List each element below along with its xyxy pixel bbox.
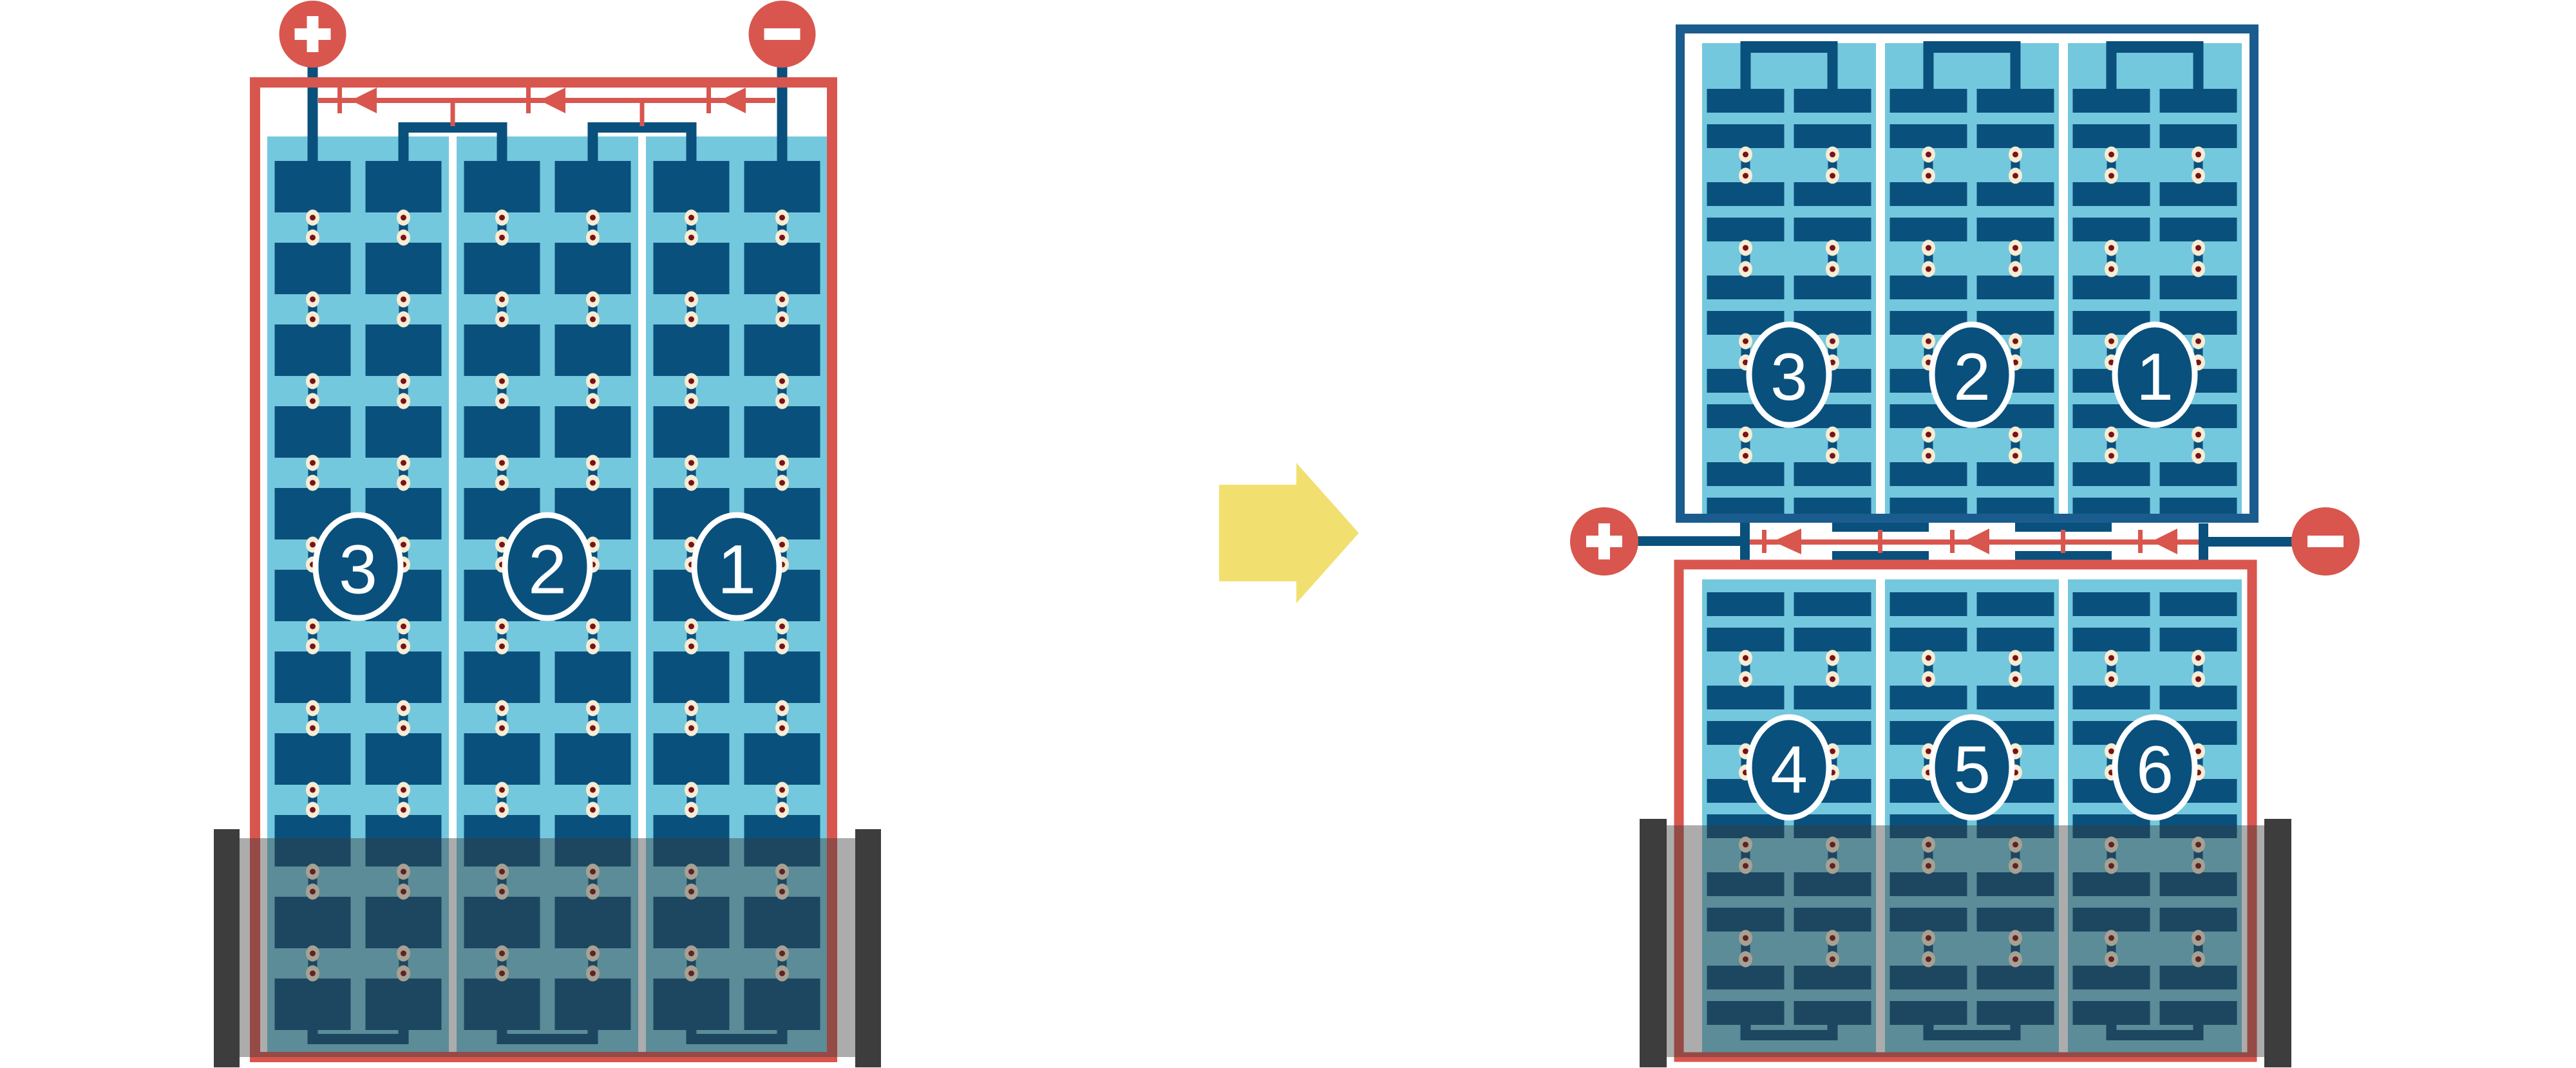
rivet-center xyxy=(2108,152,2114,158)
rivet-center xyxy=(310,235,316,241)
rivet-center xyxy=(688,706,694,711)
rivet-center xyxy=(401,398,406,404)
battery-plate-cell xyxy=(366,651,442,703)
rivet-center xyxy=(688,787,694,793)
connector-bridge-leg xyxy=(399,122,409,169)
battery-plate-cell xyxy=(2073,498,2150,514)
battery-plate-cell xyxy=(366,406,442,458)
connector-bridge-leg xyxy=(1828,41,1838,90)
rivet-center xyxy=(2012,245,2018,251)
rivet-center xyxy=(1743,677,1748,682)
rivet-center xyxy=(499,235,505,241)
rivet-center xyxy=(590,644,596,650)
rivet-center xyxy=(1926,453,1931,459)
right-upper-pack: 3 2 1 xyxy=(1680,29,2254,518)
battery-plate-cell xyxy=(555,651,631,703)
rivet-center xyxy=(499,480,505,486)
rivet-center xyxy=(2108,677,2114,682)
rivet-center xyxy=(1743,655,1748,661)
battery-plate-cell xyxy=(1707,218,1785,241)
rivet-center xyxy=(401,235,406,241)
lower-cell-badges: 4 5 6 xyxy=(1749,717,2195,818)
rivet-center xyxy=(1926,245,1931,251)
cell-number: 2 xyxy=(528,530,567,608)
rivet-center xyxy=(779,726,785,731)
rivet-center xyxy=(499,644,505,650)
battery-plate-cell xyxy=(366,243,442,294)
rivet-center xyxy=(310,317,316,323)
connector-bridge-leg xyxy=(1741,41,1751,90)
rivet-center xyxy=(1926,432,1931,438)
connector-bridge-bar xyxy=(2107,41,2204,53)
rivet-center xyxy=(1926,152,1931,158)
battery-plate-cell xyxy=(555,324,631,376)
right-battery-unit: 3 2 1 xyxy=(1570,29,2360,1067)
rivet-center xyxy=(401,706,406,711)
cell-number: 1 xyxy=(2136,340,2173,415)
battery-plate-cell xyxy=(2073,686,2150,709)
rivet-center xyxy=(779,235,785,241)
battery-plate-cell xyxy=(1977,124,2054,148)
diode-bar xyxy=(2138,530,2143,553)
positive-bus-stub xyxy=(1740,523,1750,560)
battery-plate-cell xyxy=(1794,124,1871,148)
rivet-center xyxy=(499,787,505,793)
rivet-center xyxy=(1830,453,1835,459)
rivet-center xyxy=(2108,655,2114,661)
rivet-center xyxy=(590,624,596,630)
battery-plate-cell xyxy=(2160,124,2237,148)
battery-plate-cell xyxy=(366,733,442,785)
negative-bus-bar xyxy=(2208,537,2292,547)
battery-plate-cell xyxy=(1794,276,1871,299)
battery-plate-cell xyxy=(2160,686,2237,709)
battery-plate-cell xyxy=(1890,89,1967,113)
battery-plate-cell xyxy=(1890,124,1967,148)
battery-plate-cell xyxy=(2073,462,2150,486)
rivet-center xyxy=(401,317,406,323)
battery-plate-cell xyxy=(1890,628,1967,651)
battery-plate-cell xyxy=(1890,182,1967,206)
rivet-center xyxy=(1926,339,1931,344)
positive-bus-bar xyxy=(1638,536,1741,546)
rivet-center xyxy=(1743,267,1748,272)
battery-plate-cell xyxy=(2073,89,2150,113)
rivet-center xyxy=(779,542,785,548)
rivet-center xyxy=(688,542,694,548)
battery-plate-cell xyxy=(275,733,351,785)
rivet-center xyxy=(2195,173,2201,179)
rivet-center xyxy=(2108,339,2114,344)
rivet-center xyxy=(779,297,785,303)
rivet-center xyxy=(2012,267,2018,272)
connector-bridge-leg xyxy=(588,122,598,169)
left-arrowhead-icon xyxy=(351,88,377,113)
rivet-center xyxy=(310,460,316,466)
cell-number: 1 xyxy=(717,530,756,608)
battery-plate-cell xyxy=(275,406,351,458)
battery-plate-cell xyxy=(1707,462,1785,486)
rivet-center xyxy=(310,297,316,303)
rivet-center xyxy=(499,726,505,731)
rivet-center xyxy=(1830,173,1835,179)
upper-cell-grid xyxy=(1702,43,2242,514)
rivet-center xyxy=(2108,453,2114,459)
rivet-center xyxy=(1830,677,1835,682)
battery-plate-cell xyxy=(1794,182,1871,206)
battery-plate-cell xyxy=(744,324,820,376)
current-line-tick xyxy=(2061,530,2065,553)
rivet-center xyxy=(688,215,694,221)
battery-plate-cell xyxy=(555,406,631,458)
rivet-center xyxy=(1830,152,1835,158)
rivet-center xyxy=(1743,432,1748,438)
battery-plate-cell xyxy=(2160,462,2237,486)
rivet-center xyxy=(779,460,785,466)
rivet-center xyxy=(499,460,505,466)
rivet-center xyxy=(499,379,505,384)
rivet-center xyxy=(2012,152,2018,158)
rivet-center xyxy=(2012,655,2018,661)
rivet-center xyxy=(2012,453,2018,459)
right-case-tray xyxy=(1640,819,2291,1067)
rivet-center xyxy=(590,807,596,813)
rivet-center xyxy=(1926,173,1931,179)
battery-plate-cell xyxy=(464,406,540,458)
rivet-center xyxy=(2195,267,2201,272)
battery-plate-cell xyxy=(654,406,730,458)
rivet-center xyxy=(688,726,694,731)
battery-plate-cell xyxy=(1794,89,1871,113)
battery-plate-cell xyxy=(2073,182,2150,206)
rivet-center xyxy=(1830,245,1835,251)
rivet-center xyxy=(2195,339,2201,344)
battery-plate-cell xyxy=(2160,628,2237,651)
left-arrowhead-icon xyxy=(1773,529,1801,554)
battery-plate-cell xyxy=(2073,592,2150,616)
rivet-center xyxy=(2195,453,2201,459)
battery-plate-cell xyxy=(464,651,540,703)
rivet-center xyxy=(688,297,694,303)
rivet-center xyxy=(590,726,596,731)
battery-plate-cell xyxy=(2073,218,2150,241)
minus-icon-bar xyxy=(764,28,800,40)
rivet-center xyxy=(779,706,785,711)
rivet-center xyxy=(1926,749,1931,754)
rivet-center xyxy=(779,787,785,793)
rivet-center xyxy=(1830,432,1835,438)
negative-bus-stub xyxy=(2199,523,2208,560)
right-negative-terminal xyxy=(2291,507,2360,576)
rivet-center xyxy=(590,215,596,221)
connector-bridge-bar xyxy=(1741,41,1838,53)
rivet-center xyxy=(688,644,694,650)
battery-plate-cell xyxy=(1794,498,1871,514)
connector-bridge-bar xyxy=(1924,41,2021,53)
battery-plate-cell xyxy=(1707,628,1785,651)
left-current-flow-line xyxy=(318,88,775,126)
battery-plate-cell xyxy=(2160,218,2237,241)
rivet-center xyxy=(310,379,316,384)
current-line-drop-tick xyxy=(451,98,455,126)
tray-end-cap xyxy=(2264,819,2291,1067)
rivet-center xyxy=(310,644,316,650)
left-case-tray xyxy=(214,829,881,1067)
rivet-center xyxy=(590,235,596,241)
rivet-center xyxy=(2108,267,2114,272)
left-negative-terminal xyxy=(749,1,816,68)
rivet-center xyxy=(310,807,316,813)
rivet-center xyxy=(1830,339,1835,344)
battery-plate-cell xyxy=(1794,218,1871,241)
rivet-center xyxy=(401,460,406,466)
battery-plate-cell xyxy=(464,324,540,376)
battery-plate-cell xyxy=(555,243,631,294)
battery-plate-cell xyxy=(1977,462,2054,486)
cell-number: 4 xyxy=(1770,733,1808,807)
rivet-center xyxy=(2012,677,2018,682)
rivet-center xyxy=(2108,245,2114,251)
rivet-center xyxy=(499,542,505,548)
battery-plate-cell xyxy=(744,243,820,294)
battery-plate-cell xyxy=(1707,592,1785,616)
battery-plate-cell xyxy=(275,243,351,294)
rivet-center xyxy=(401,807,406,813)
rivet-center xyxy=(2012,749,2018,754)
battery-plate-cell xyxy=(2160,182,2237,206)
rivet-center xyxy=(779,644,785,650)
rivet-center xyxy=(590,317,596,323)
rivet-center xyxy=(688,398,694,404)
battery-plate-cell xyxy=(1977,686,2054,709)
battery-plate-cell xyxy=(1977,218,2054,241)
rivet-center xyxy=(2195,245,2201,251)
rivet-center xyxy=(2108,173,2114,179)
rivet-center xyxy=(2012,339,2018,344)
cell-number: 2 xyxy=(1953,340,1991,415)
rivet-center xyxy=(590,297,596,303)
rivet-center xyxy=(688,480,694,486)
rivet-center xyxy=(310,787,316,793)
rivet-center xyxy=(499,398,505,404)
rivet-center xyxy=(401,624,406,630)
rivet-center xyxy=(401,644,406,650)
battery-plate-cell xyxy=(654,243,730,294)
rivet-center xyxy=(401,297,406,303)
rivet-center xyxy=(499,706,505,711)
battery-plate-cell xyxy=(744,406,820,458)
battery-plate-cell xyxy=(1890,498,1967,514)
plus-icon-bar xyxy=(1598,523,1610,559)
rivet-center xyxy=(499,807,505,813)
connector-bridge-leg xyxy=(1924,41,1934,90)
right-current-flow-line xyxy=(1750,529,2199,554)
rivet-center xyxy=(2195,749,2201,754)
rivet-center xyxy=(310,542,316,548)
rivet-center xyxy=(401,726,406,731)
battery-plate-cell xyxy=(275,324,351,376)
rivet-center xyxy=(1743,152,1748,158)
battery-plate-cell xyxy=(1707,686,1785,709)
battery-plate-cell xyxy=(1977,276,2054,299)
rivet-center xyxy=(590,542,596,548)
rivet-center xyxy=(1830,749,1835,754)
rivet-center xyxy=(1926,655,1931,661)
rivet-center xyxy=(2195,432,2201,438)
battery-plate-cell xyxy=(2160,498,2237,514)
rivet-center xyxy=(310,215,316,221)
left-arrowhead-icon xyxy=(2152,529,2177,554)
battery-plate-cell xyxy=(1707,89,1785,113)
rivet-center xyxy=(1743,245,1748,251)
diode-bar xyxy=(706,88,711,113)
battery-plate-cell xyxy=(2073,276,2150,299)
connector-bridge-leg xyxy=(497,122,507,169)
rivet-center xyxy=(2012,432,2018,438)
tray-overlay xyxy=(1667,825,2264,1057)
rivet-center xyxy=(401,787,406,793)
connector-bridge-leg xyxy=(2193,41,2204,90)
battery-plate-cell xyxy=(1977,182,2054,206)
rivet-center xyxy=(688,460,694,466)
rivet-center xyxy=(1926,677,1931,682)
battery-plate-cell xyxy=(1890,686,1967,709)
minus-icon-bar xyxy=(2307,536,2344,547)
left-cell-badges: 3 2 1 xyxy=(316,515,779,618)
battery-plate-cell xyxy=(1794,592,1871,616)
rivet-center xyxy=(590,460,596,466)
left-arrowhead-icon xyxy=(720,88,746,113)
tray-overlay xyxy=(240,838,855,1057)
battery-plate-cell xyxy=(654,651,730,703)
battery-plate-cell xyxy=(464,733,540,785)
connector-bridge-leg xyxy=(2011,41,2021,90)
rivet-center xyxy=(688,807,694,813)
diode-bar xyxy=(1762,530,1766,553)
battery-plate-cell xyxy=(744,651,820,703)
tray-end-cap xyxy=(1640,819,1667,1067)
battery-plate-cell xyxy=(1977,592,2054,616)
connector-bridge-leg xyxy=(2107,41,2117,90)
cell-number: 6 xyxy=(2136,733,2173,807)
battery-plate-cell xyxy=(1794,462,1871,486)
rivet-center xyxy=(499,215,505,221)
battery-plate-cell xyxy=(744,733,820,785)
diode-bar xyxy=(526,88,531,113)
battery-plate-cell xyxy=(1707,182,1785,206)
rivet-center xyxy=(688,624,694,630)
rivet-center xyxy=(499,297,505,303)
plus-icon-bar xyxy=(307,16,319,52)
battery-plate-cell xyxy=(1977,628,2054,651)
current-line-tick xyxy=(1878,530,1882,553)
battery-plate-cell xyxy=(366,324,442,376)
rivet-center xyxy=(499,317,505,323)
cell-number: 5 xyxy=(1953,733,1991,807)
rivet-center xyxy=(310,480,316,486)
rivet-center xyxy=(779,624,785,630)
rivet-center xyxy=(688,379,694,384)
battery-plate-cell xyxy=(654,324,730,376)
rivet-center xyxy=(688,317,694,323)
diode-bar xyxy=(1950,530,1955,553)
figure: 3 2 1 3 2 1 xyxy=(0,0,2576,1068)
rivet-center xyxy=(499,624,505,630)
battery-plate-cell xyxy=(1707,124,1785,148)
battery-plate-cell xyxy=(2160,276,2237,299)
rivet-center xyxy=(779,480,785,486)
battery-plate-cell xyxy=(1977,498,2054,514)
rivet-center xyxy=(1926,267,1931,272)
rivet-center xyxy=(2108,749,2114,754)
battery-plate-cell xyxy=(464,243,540,294)
tray-end-cap xyxy=(214,829,240,1067)
battery-plate-cell xyxy=(2160,89,2237,113)
rivet-center xyxy=(401,480,406,486)
battery-plate-cell xyxy=(275,651,351,703)
rivet-center xyxy=(2195,677,2201,682)
current-line-drop-tick xyxy=(640,98,645,126)
rivet-center xyxy=(779,215,785,221)
rivet-center xyxy=(1743,173,1748,179)
rivet-center xyxy=(779,379,785,384)
battery-plate-cell xyxy=(1707,498,1785,514)
rivet-center xyxy=(1830,267,1835,272)
rivet-center xyxy=(590,398,596,404)
battery-plate-cell xyxy=(2160,592,2237,616)
rivet-center xyxy=(401,542,406,548)
rivet-center xyxy=(310,624,316,630)
rivet-center xyxy=(2108,432,2114,438)
battery-plate-cell xyxy=(2073,124,2150,148)
rivet-center xyxy=(1743,749,1748,754)
left-positive-terminal xyxy=(279,1,346,68)
diagram-canvas: 3 2 1 3 2 1 xyxy=(0,0,2576,1068)
rivet-center xyxy=(310,726,316,731)
rivet-center xyxy=(688,235,694,241)
rivet-center xyxy=(779,317,785,323)
rivet-center xyxy=(310,706,316,711)
rivet-center xyxy=(2195,655,2201,661)
rivet-center xyxy=(1743,453,1748,459)
rivet-center xyxy=(590,379,596,384)
battery-plate-cell xyxy=(2073,628,2150,651)
rivet-center xyxy=(590,480,596,486)
battery-plate-cell xyxy=(654,733,730,785)
rivet-center xyxy=(779,807,785,813)
rivet-center xyxy=(590,706,596,711)
rivet-center xyxy=(310,398,316,404)
left-arrowhead-icon xyxy=(1964,529,1989,554)
rivet-center xyxy=(401,215,406,221)
rivet-center xyxy=(590,787,596,793)
battery-plate-cell xyxy=(1890,218,1967,241)
battery-plate-cell xyxy=(555,733,631,785)
rivet-center xyxy=(1830,655,1835,661)
right-positive-terminal xyxy=(1570,507,1638,576)
left-arrowhead-icon xyxy=(540,88,565,113)
battery-plate-cell xyxy=(1890,276,1967,299)
battery-plate-cell xyxy=(1890,462,1967,486)
cell-number: 3 xyxy=(339,530,377,608)
battery-plate-cell xyxy=(1977,89,2054,113)
battery-plate-cell xyxy=(1794,628,1871,651)
tray-end-cap xyxy=(855,829,881,1067)
battery-plate-cell xyxy=(1794,686,1871,709)
connector-bridge-leg xyxy=(687,122,697,169)
battery-plate-cell xyxy=(1890,592,1967,616)
rivet-center xyxy=(401,379,406,384)
